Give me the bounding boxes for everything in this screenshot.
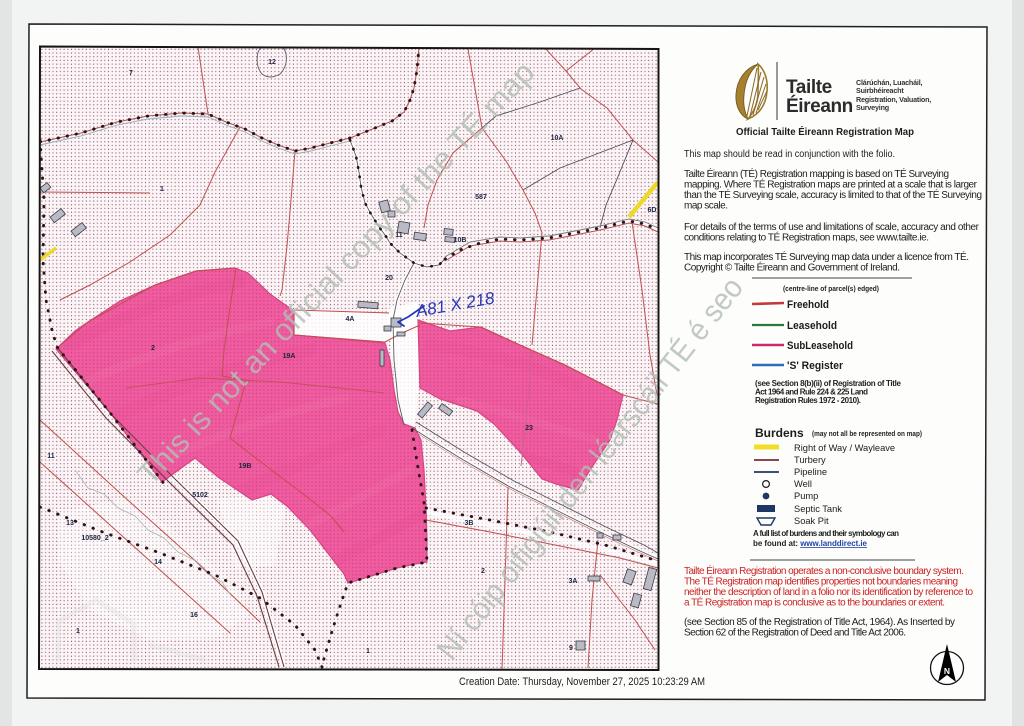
svg-text:9: 9	[569, 645, 573, 652]
svg-text:10A: 10A	[551, 135, 564, 142]
svg-text:20: 20	[385, 275, 393, 282]
svg-text:Freehold: Freehold	[787, 299, 829, 311]
svg-text:Éireann: Éireann	[786, 95, 853, 117]
svg-text:Creation Date: Thursday, Novem: Creation Date: Thursday, November 27, 20…	[459, 676, 705, 688]
svg-text:23: 23	[525, 425, 533, 432]
svg-text:12: 12	[268, 59, 276, 66]
svg-text:This map should be read in con: This map should be read in conjunction w…	[684, 149, 895, 160]
svg-text:be found at: www.landdirect.ie: be found at: www.landdirect.ie	[753, 539, 868, 548]
svg-text:5102: 5102	[192, 492, 208, 499]
svg-text:Tailte Éireann (TÉ) Registrati: Tailte Éireann (TÉ) Registration mapping…	[684, 167, 949, 180]
svg-text:11: 11	[47, 453, 55, 460]
svg-text:6D: 6D	[648, 207, 657, 214]
svg-text:Turbery: Turbery	[794, 455, 826, 465]
svg-text:Pipeline: Pipeline	[794, 467, 827, 477]
svg-text:neither the description of lan: neither the description of land in a fol…	[684, 587, 973, 598]
svg-text:Official Tailte Éireann Regist: Official Tailte Éireann Registration Map	[736, 125, 914, 138]
svg-text:SubLeasehold: SubLeasehold	[787, 340, 853, 352]
svg-text:a TÉ Registration map is concl: a TÉ Registration map is conclusive as t…	[684, 596, 945, 609]
svg-text:Section 62 of the Registration: Section 62 of the Registration of Deed a…	[684, 628, 906, 639]
svg-text:N: N	[944, 666, 950, 676]
svg-text:'S' Register: 'S' Register	[787, 360, 844, 372]
svg-text:587: 587	[475, 194, 487, 201]
svg-text:Well: Well	[794, 479, 812, 489]
svg-text:10580_2: 10580_2	[81, 535, 108, 542]
svg-text:Tailte Éireann Registration op: Tailte Éireann Registration operates a n…	[684, 564, 964, 577]
svg-text:Soak Pit: Soak Pit	[794, 516, 829, 526]
svg-text:The TÉ Registration map identi: The TÉ Registration map identifies prope…	[684, 575, 958, 588]
svg-text:7: 7	[129, 70, 133, 77]
svg-text:1: 1	[366, 648, 370, 655]
svg-text:16: 16	[190, 612, 198, 619]
svg-text:Leasehold: Leasehold	[787, 320, 837, 332]
svg-text:map scale.: map scale.	[684, 201, 728, 212]
svg-text:1: 1	[160, 186, 164, 193]
svg-text:(see Section 85 of the Registr: (see Section 85 of the Registration of T…	[684, 617, 955, 628]
svg-text:Copyright © Tailte Éireann and: Copyright © Tailte Éireann and Governmen…	[684, 261, 900, 274]
svg-text:mapping. Where TÉ Registration: mapping. Where TÉ Registration maps are …	[684, 178, 978, 191]
svg-text:(centre-line of parcel(s) edge: (centre-line of parcel(s) edged)	[783, 284, 880, 293]
svg-text:14: 14	[154, 559, 162, 566]
svg-text:3B: 3B	[465, 520, 474, 527]
svg-text:2: 2	[151, 345, 155, 352]
svg-text:Burdens: Burdens	[755, 426, 804, 440]
svg-text:4A: 4A	[346, 316, 355, 323]
svg-text:For details of the terms of us: For details of the terms of use and limi…	[684, 222, 980, 233]
svg-text:3A: 3A	[569, 578, 578, 585]
svg-text:This map incorporates TÉ Surve: This map incorporates TÉ Surveying map d…	[684, 250, 969, 263]
svg-text:Registration Rules 1972 - 2010: Registration Rules 1972 - 2010).	[755, 396, 861, 405]
svg-text:Pump: Pump	[794, 491, 818, 501]
svg-text:19B: 19B	[239, 463, 252, 470]
svg-text:13: 13	[66, 520, 74, 527]
svg-text:Tailte: Tailte	[786, 77, 832, 98]
svg-text:A full list of burdens and the: A full list of burdens and their symbolo…	[753, 529, 899, 538]
svg-text:Septic Tank: Septic Tank	[794, 504, 842, 514]
svg-text:1: 1	[76, 628, 80, 635]
svg-text:than the TÉ Surveying scale, a: than the TÉ Surveying scale, accuracy is…	[684, 188, 982, 201]
svg-text:10B: 10B	[454, 237, 467, 244]
svg-text:(may not all be represented on: (may not all be represented on map)	[812, 429, 922, 438]
svg-text:Suirbhéireacht: Suirbhéireacht	[856, 86, 904, 95]
svg-text:conditions relating to TÉ Regi: conditions relating to TÉ Registration m…	[684, 231, 929, 244]
svg-text:Right of Way / Wayleave: Right of Way / Wayleave	[794, 443, 895, 453]
svg-text:Surveying: Surveying	[856, 103, 889, 112]
